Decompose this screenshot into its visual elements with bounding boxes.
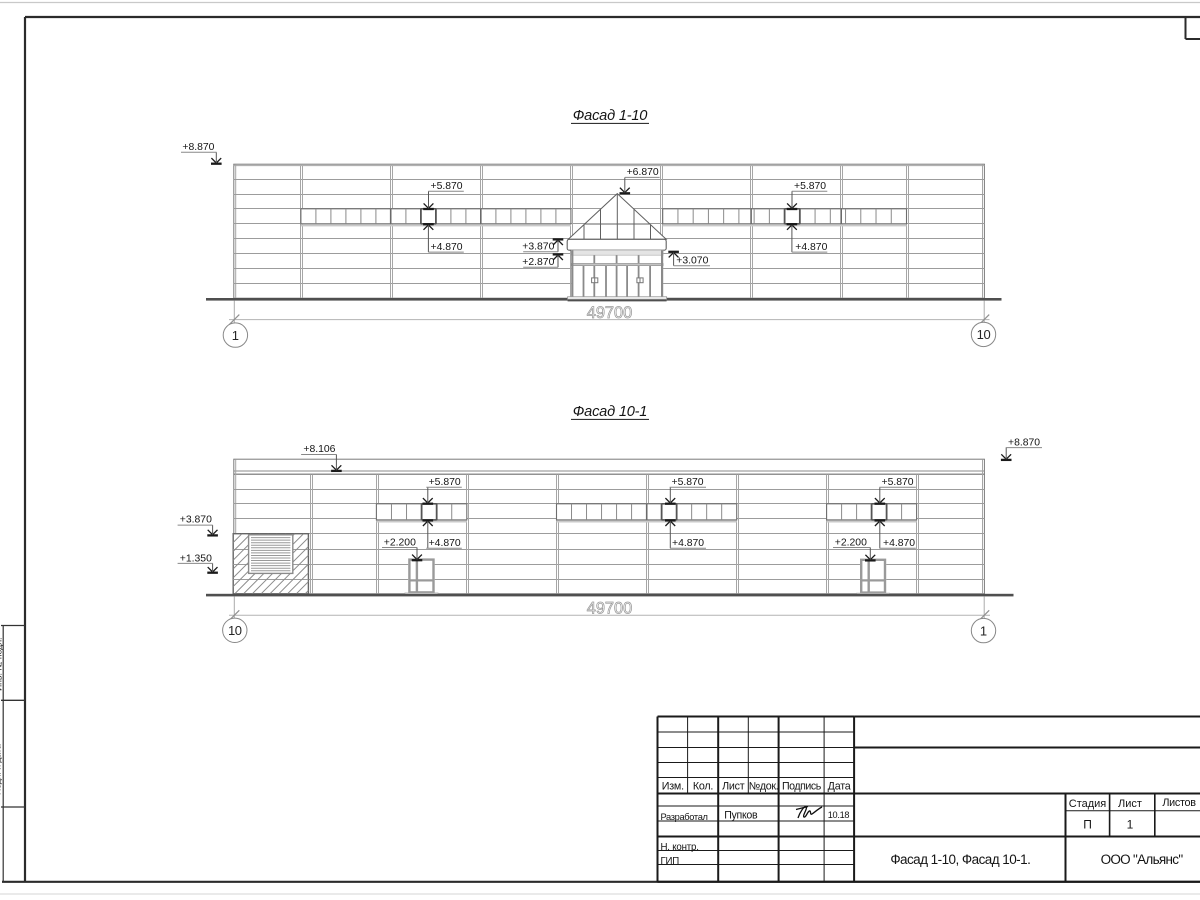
- svg-text:+2.870: +2.870: [522, 257, 554, 268]
- svg-text:Кол.: Кол.: [693, 781, 713, 793]
- svg-text:+4.870: +4.870: [672, 538, 704, 549]
- svg-text:Лист: Лист: [722, 781, 745, 793]
- svg-text:Инв. № подл.: Инв. № подл.: [0, 637, 3, 691]
- svg-text:+5.870: +5.870: [431, 181, 463, 192]
- svg-text:+4.870: +4.870: [795, 242, 827, 253]
- svg-text:ООО "Альянс": ООО "Альянс": [1101, 852, 1184, 867]
- svg-text:+4.870: +4.870: [429, 538, 461, 549]
- svg-text:П: П: [1083, 818, 1092, 832]
- svg-text:Лист: Лист: [1118, 798, 1142, 810]
- svg-text:+3.870: +3.870: [180, 515, 212, 526]
- svg-text:Пупков: Пупков: [724, 810, 758, 822]
- svg-text:49700: 49700: [587, 304, 633, 322]
- svg-text:+3.870: +3.870: [522, 242, 554, 253]
- svg-text:1: 1: [980, 623, 987, 638]
- svg-text:Подп. и дата: Подп. и дата: [0, 744, 2, 795]
- svg-text:+5.870: +5.870: [672, 477, 704, 488]
- svg-text:+2.200: +2.200: [384, 537, 416, 548]
- svg-text:+8.106: +8.106: [303, 444, 335, 455]
- svg-text:10.18: 10.18: [828, 810, 850, 820]
- svg-text:+4.870: +4.870: [431, 242, 463, 253]
- svg-text:+8.870: +8.870: [1008, 437, 1040, 448]
- svg-text:Дата: Дата: [828, 781, 851, 793]
- svg-text:+8.870: +8.870: [182, 142, 214, 153]
- svg-text:10: 10: [228, 623, 242, 638]
- svg-text:Фасад 1-10: Фасад 1-10: [573, 108, 648, 124]
- svg-text:Изм.: Изм.: [662, 781, 684, 793]
- svg-text:+2.200: +2.200: [835, 537, 867, 548]
- svg-text:+4.870: +4.870: [883, 538, 915, 549]
- svg-text:№док.: №док.: [749, 781, 779, 793]
- svg-text:+6.870: +6.870: [627, 167, 659, 178]
- svg-text:Подпись: Подпись: [782, 781, 822, 793]
- svg-text:+1.350: +1.350: [180, 553, 212, 564]
- svg-text:+5.870: +5.870: [882, 477, 914, 488]
- svg-text:10: 10: [977, 327, 991, 342]
- svg-text:Н. контр.: Н. контр.: [661, 842, 699, 853]
- svg-text:Разработал: Разработал: [661, 812, 708, 822]
- svg-text:ГИП: ГИП: [661, 856, 680, 867]
- svg-text:1: 1: [232, 328, 239, 343]
- svg-text:Фасад 1-10, Фасад 10-1.: Фасад 1-10, Фасад 10-1.: [890, 852, 1030, 867]
- svg-text:49700: 49700: [587, 600, 633, 618]
- svg-text:Фасад 10-1: Фасад 10-1: [573, 404, 647, 420]
- svg-text:1: 1: [1127, 818, 1134, 832]
- svg-text:+5.870: +5.870: [429, 477, 461, 488]
- svg-text:+3.070: +3.070: [676, 256, 708, 267]
- svg-text:+5.870: +5.870: [794, 181, 826, 192]
- svg-text:Стадия: Стадия: [1069, 798, 1107, 810]
- svg-text:Листов: Листов: [1162, 797, 1196, 809]
